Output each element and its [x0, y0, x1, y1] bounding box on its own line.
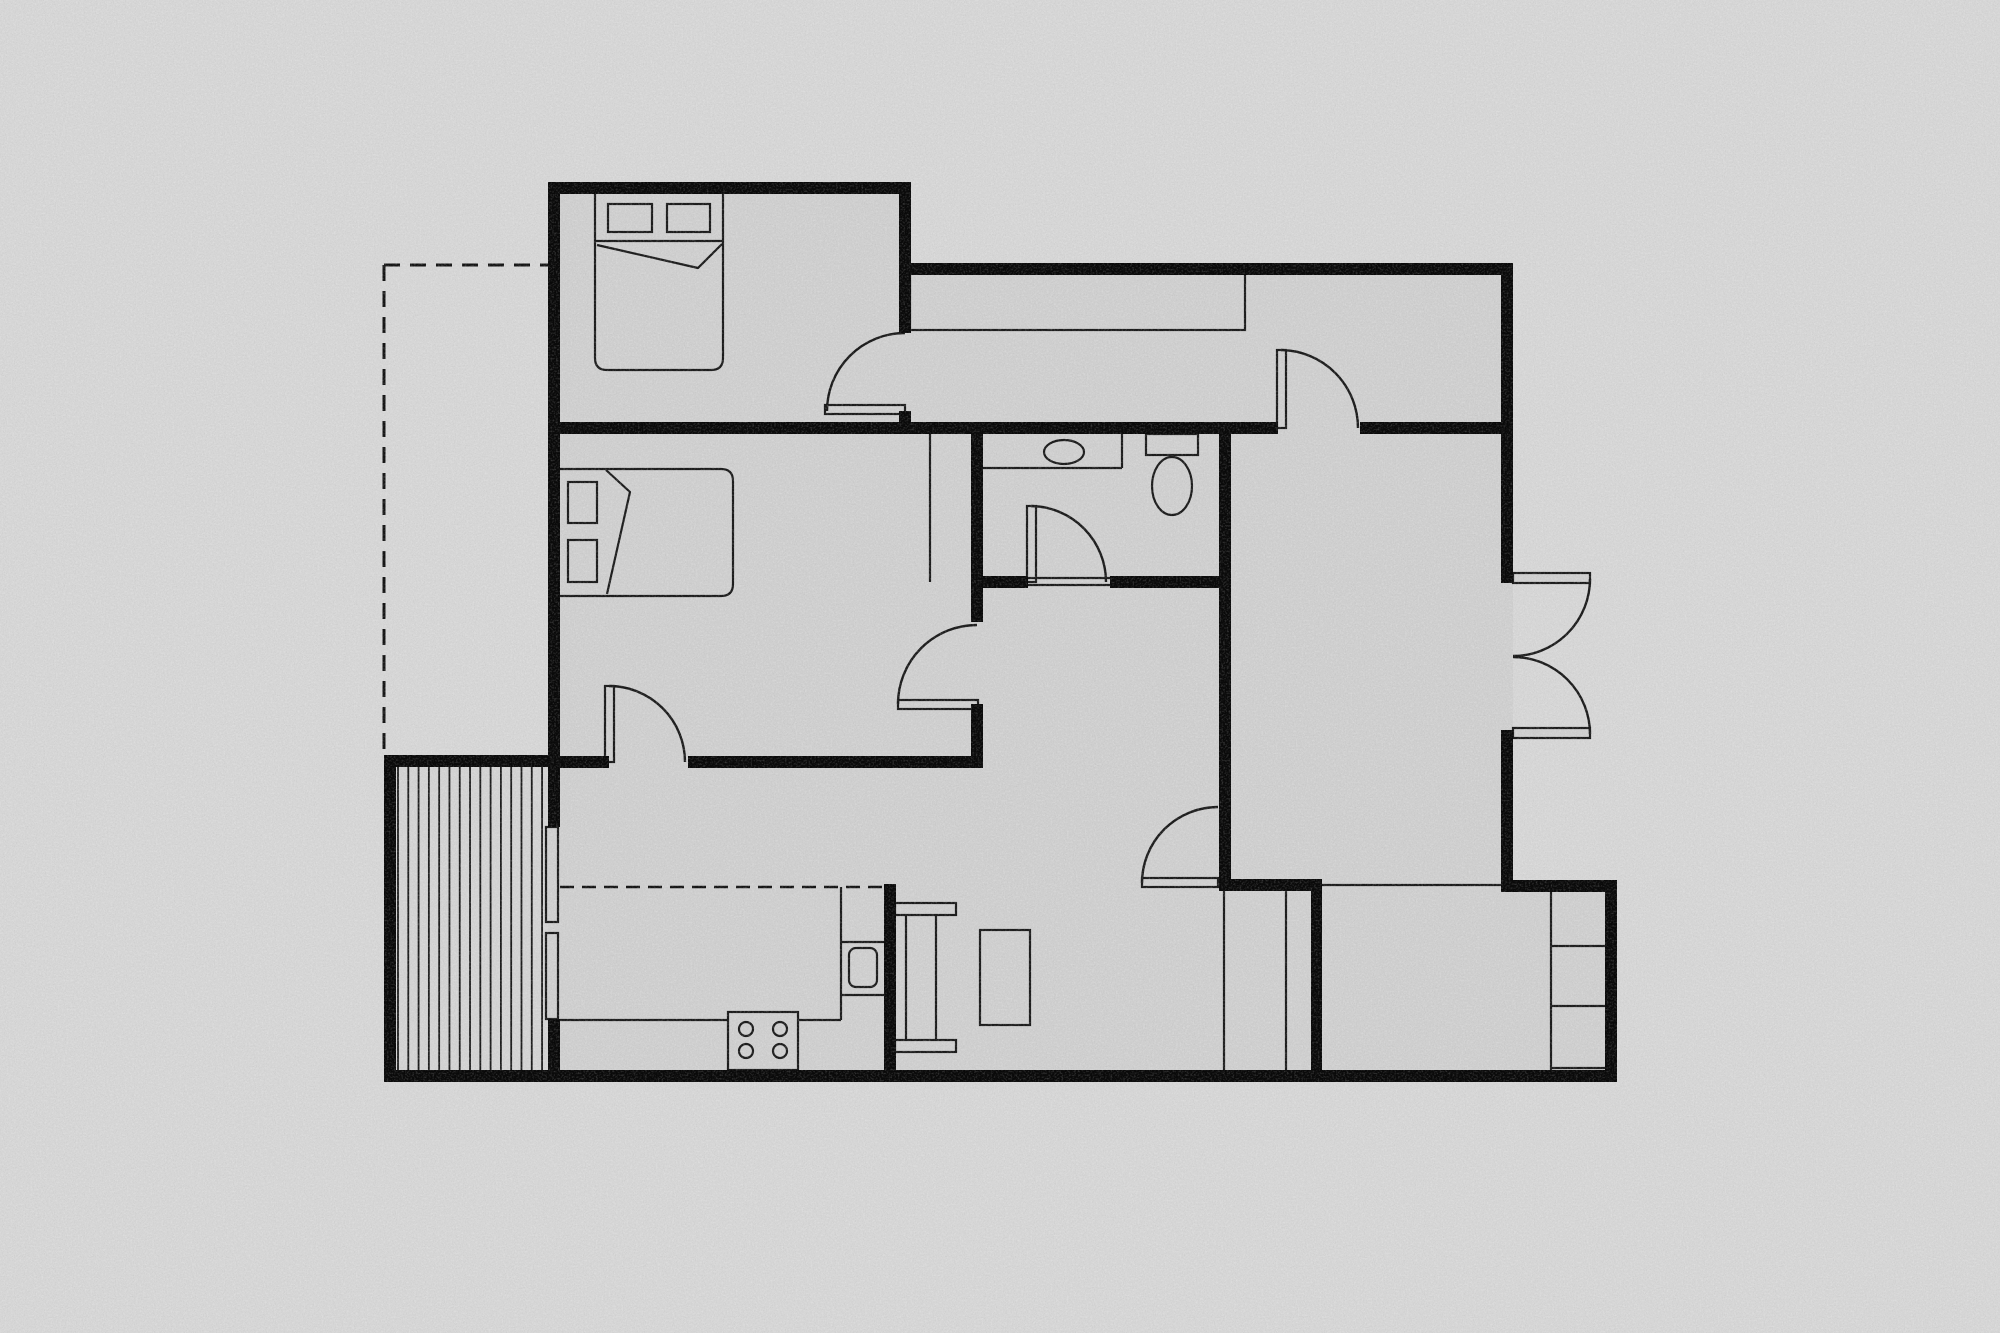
door-leaf-hall	[1277, 350, 1286, 428]
door-leaf-bedroom2-kitchen	[605, 686, 614, 762]
wall-right-lower	[1501, 730, 1513, 892]
floor-plan-canvas	[0, 0, 2000, 1333]
wall-closet-right	[1311, 885, 1322, 1072]
hall-closet	[910, 272, 1245, 330]
console-cap-top	[895, 903, 956, 915]
door-leaf-bedroom1	[825, 405, 905, 414]
wall-bath-bottom-right	[1110, 576, 1231, 588]
window-left-lower	[546, 933, 558, 1019]
kitchen-sink	[849, 948, 877, 987]
wall-bedroom2-bottom-right	[688, 756, 983, 768]
door-leaf-french-top	[1513, 573, 1590, 583]
bed2-pillow-bottom	[568, 540, 597, 582]
window-left-upper	[546, 827, 558, 922]
wall-hall-top	[905, 263, 1513, 275]
dining-table	[980, 930, 1030, 1025]
door-leaf-bedroom2-living	[898, 700, 978, 709]
wall-bedroom2-bottom-left	[548, 756, 609, 768]
wall-b	[1219, 434, 1231, 885]
wall-cross-main-left	[548, 422, 1278, 434]
wall-deck-top	[384, 755, 556, 767]
toilet-tank	[1146, 434, 1198, 455]
wall-left-upper	[548, 182, 560, 827]
door-leaf-bathroom	[1027, 506, 1036, 582]
wall-right-outer	[1605, 880, 1617, 1082]
wall-bedroom1-right-upper	[899, 182, 911, 333]
wall-cross-main-right	[1360, 422, 1513, 434]
wall-kitchen-dining	[884, 884, 896, 1082]
wall-closet-top	[1219, 879, 1322, 891]
stove	[728, 1012, 798, 1070]
wall-top-bedroom1	[548, 182, 911, 194]
deck	[396, 767, 548, 1070]
bed1-pillow-left	[608, 204, 652, 232]
floor-plan-svg	[0, 0, 2000, 1333]
wall-bottom	[384, 1070, 1617, 1082]
door-leaf-living-dining	[1142, 878, 1218, 887]
wall-deck-left	[384, 755, 396, 1082]
wall-step-top	[1501, 880, 1617, 892]
wall-a-upper	[971, 434, 983, 622]
console-cap-bottom	[895, 1040, 956, 1052]
door-leaf-french-bottom	[1513, 728, 1590, 738]
bed1-pillow-right	[667, 204, 710, 232]
wall-bath-bottom-left	[971, 576, 1028, 588]
bed2-pillow-top	[568, 482, 597, 523]
